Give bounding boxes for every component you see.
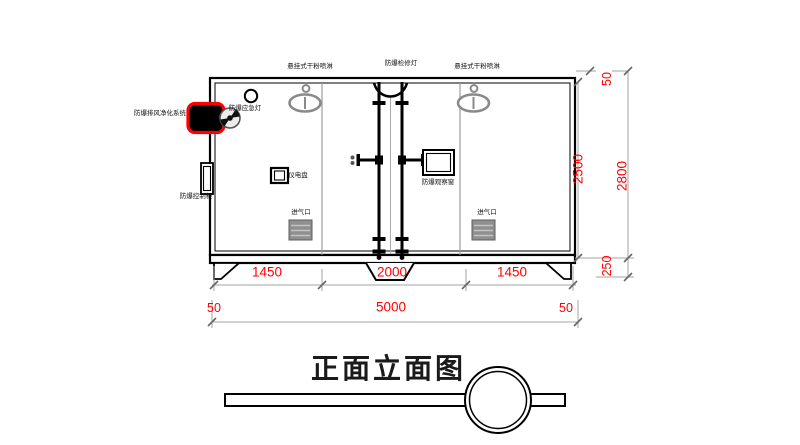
dim-width-seg3: 1450	[497, 265, 527, 279]
sprinkler-icon	[471, 85, 478, 92]
left-leg	[214, 263, 239, 279]
container-outer-wall	[210, 78, 575, 255]
dim-right-offset: 50	[559, 302, 573, 315]
dim-overall-width: 5000	[376, 300, 406, 314]
dim-width-seg2: 2000	[377, 265, 407, 279]
dim-leg-height: 250	[601, 256, 614, 277]
dim-overall-height: 2800	[615, 161, 629, 191]
observation-window-symbol	[423, 150, 454, 175]
exhaust-unit-body	[188, 104, 224, 133]
air-inlet-right-grille	[472, 220, 495, 240]
air-inlet-right-label: 进气口	[477, 210, 497, 217]
observation-window-label: 防爆观察窗	[422, 180, 455, 187]
sprinkler-icon	[303, 85, 310, 92]
drawing-title: 正面立面图	[311, 354, 466, 386]
title-circle-outer	[465, 367, 531, 433]
sprinkler-left-label: 悬挂式干粉喷淋	[287, 64, 333, 71]
dim-roof-offset: 50	[601, 72, 614, 86]
power-panel-label: 仪电盘	[288, 173, 308, 180]
air-inlet-left-grille	[289, 220, 312, 240]
exhaust-system-label: 防爆排风净化系统	[134, 111, 186, 118]
drawing-canvas: 悬挂式干粉喷淋 防爆检修灯 悬挂式干粉喷淋 防爆应急灯 防爆排风净化系统 防爆控…	[0, 0, 800, 445]
dim-body-height: 2500	[571, 154, 585, 184]
inspection-light-label: 防爆检修灯	[385, 61, 418, 68]
sprinkler-right-label: 悬挂式干粉喷淋	[454, 64, 500, 71]
air-inlet-left-label: 进气口	[291, 210, 311, 217]
emergency-light-symbol	[245, 90, 257, 102]
control-cabinet-symbol	[201, 163, 213, 194]
emergency-light-label: 防爆应急灯	[229, 106, 262, 113]
base-rail	[210, 255, 575, 263]
power-panel-symbol	[271, 168, 288, 183]
control-cabinet-label: 防爆控制柜	[180, 194, 213, 201]
right-leg	[546, 263, 571, 279]
dim-left-offset: 50	[207, 302, 221, 315]
container-box	[210, 78, 575, 279]
dim-width-seg1: 1450	[252, 265, 282, 279]
